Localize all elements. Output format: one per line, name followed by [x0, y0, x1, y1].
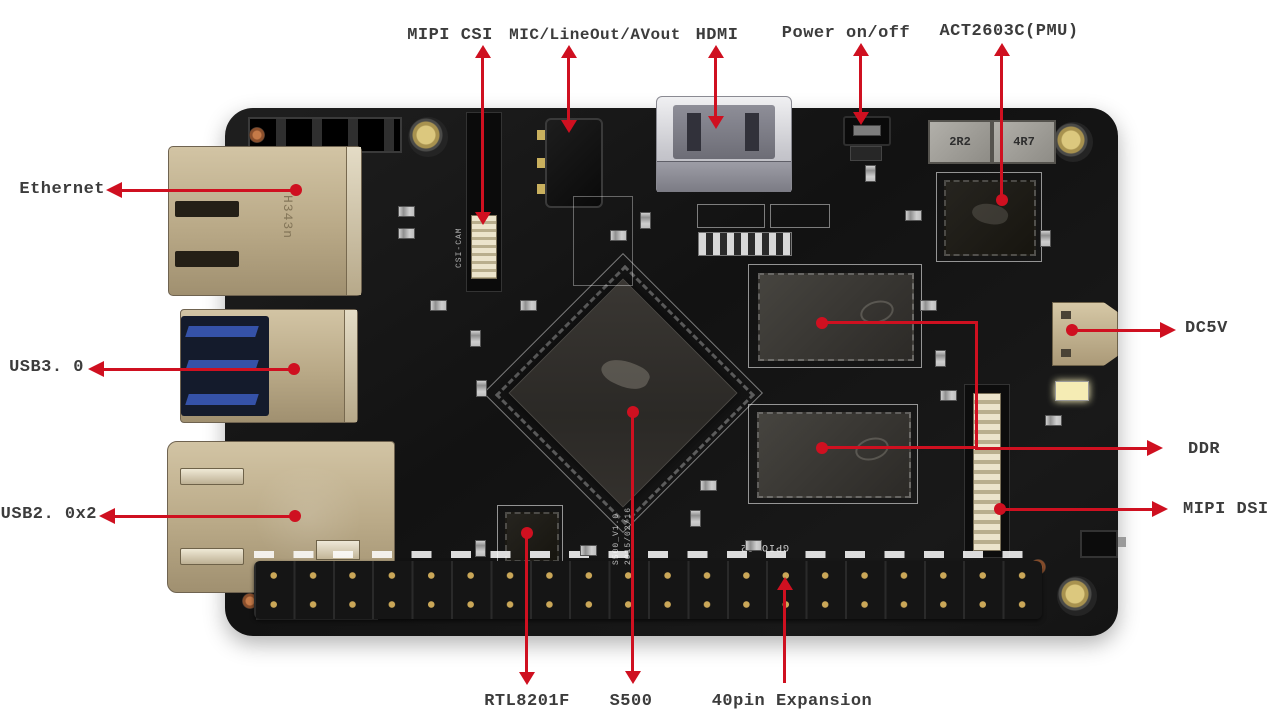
arrowhead-down — [625, 671, 641, 684]
arrow-line — [481, 56, 484, 214]
label-pmu: ACT2603C(PMU) — [939, 22, 1078, 41]
smd-component — [580, 545, 597, 556]
csi-connector — [466, 112, 502, 292]
label-mipi-dsi: MIPI DSI — [1183, 500, 1269, 519]
silkscreen-box — [770, 204, 830, 228]
smd-component — [398, 206, 415, 217]
status-led — [1055, 381, 1089, 401]
smd-component — [905, 210, 922, 221]
smd-component — [476, 380, 487, 397]
smd-component — [690, 510, 701, 527]
capacitor-row — [698, 232, 792, 256]
hdmi-slot — [745, 113, 759, 151]
arrow-line — [859, 54, 862, 114]
arrowhead-down — [853, 112, 869, 125]
arrow-dot — [996, 194, 1008, 206]
inductor: 2R2 — [928, 120, 992, 164]
arrowhead-down — [708, 116, 724, 129]
inductor-marking: 2R2 — [949, 135, 971, 149]
smd-component — [940, 390, 957, 401]
ethernet-port: H343n — [168, 146, 362, 296]
arrow-line — [822, 321, 978, 324]
hdmi-port — [656, 96, 792, 192]
silkscreen-box — [697, 204, 765, 228]
usb3-shield-edge — [344, 310, 357, 422]
smd-component — [935, 350, 946, 367]
arrow-line — [975, 321, 978, 450]
arrowhead-down — [519, 672, 535, 685]
gpio-40pin-header — [254, 561, 1042, 619]
inductor-marking: 4R7 — [1013, 135, 1035, 149]
usb3-opening — [181, 316, 269, 416]
ethernet-shield-edge — [346, 147, 361, 295]
arrow-line — [783, 589, 786, 683]
arrow-line — [714, 56, 717, 118]
label-hdmi: HDMI — [696, 26, 739, 45]
microusb-mount-pin — [1061, 349, 1071, 357]
audio-jack-pin — [537, 158, 545, 168]
annotated-board-diagram: H343n CSI-CAM — [0, 0, 1280, 720]
arrow-line — [631, 412, 634, 672]
arrow-dot — [288, 363, 300, 375]
smd-component — [920, 300, 937, 311]
smd-component — [398, 228, 415, 239]
pmu-chip — [944, 180, 1036, 256]
smd-component — [1045, 415, 1062, 426]
label-usb2: USB2. 0x2 — [0, 505, 97, 524]
label-rtl8201f: RTL8201F — [484, 692, 570, 711]
arrow-line — [120, 189, 296, 192]
arrow-dot — [289, 510, 301, 522]
label-power: Power on/off — [782, 24, 910, 43]
ddr-chip-2 — [757, 412, 911, 498]
label-dc5v: DC5V — [1185, 319, 1228, 338]
arrowhead-right — [1152, 501, 1168, 517]
arrow-line — [1000, 54, 1003, 198]
hdmi-base — [657, 161, 791, 192]
ethernet-clip-slot — [175, 201, 239, 217]
arrow-line — [525, 533, 528, 673]
usb3-contact — [185, 394, 259, 405]
mounting-screw — [1053, 122, 1093, 162]
smd-component — [640, 212, 651, 229]
smd-component — [610, 230, 627, 241]
ethernet-marking-text: H343n — [280, 195, 295, 239]
smd-component — [700, 480, 717, 491]
hdmi-slot — [687, 113, 701, 151]
label-expansion: 40pin Expansion — [712, 692, 873, 711]
ddr-chip-1 — [758, 273, 914, 361]
board-rev-text: S500_V1.0 — [612, 513, 621, 565]
label-usb3: USB3. 0 — [0, 358, 84, 377]
smd-component — [475, 540, 486, 557]
ethernet-clip-slot — [175, 251, 239, 267]
arrow-line — [567, 56, 570, 122]
arrow-line — [1072, 329, 1164, 332]
smd-component — [470, 330, 481, 347]
smd-component — [745, 540, 762, 551]
dsi-connector — [964, 384, 1010, 558]
smd-component — [520, 300, 537, 311]
arrow-line — [822, 446, 978, 449]
arrow-line — [113, 515, 295, 518]
arrow-line — [1000, 508, 1156, 511]
mounting-screw — [408, 117, 448, 157]
gpio-silkscreen — [254, 551, 1042, 558]
label-mic-lineout-avout: MIC/LineOut/AVout — [509, 26, 681, 44]
arrowhead-down — [561, 120, 577, 133]
mounting-screw — [1057, 576, 1097, 616]
usb2-clip — [180, 468, 244, 485]
arrowhead-right — [1160, 322, 1176, 338]
arrowhead-down — [475, 212, 491, 225]
usb2-clip — [180, 548, 244, 565]
label-s500: S500 — [610, 692, 653, 711]
arrow-line — [975, 447, 1147, 450]
smd-component — [1040, 230, 1051, 247]
soc-logo-mark — [598, 352, 652, 396]
side-button — [1080, 530, 1118, 558]
audio-jack-pin — [537, 184, 545, 194]
smd-component — [430, 300, 447, 311]
csi-marking-text: CSI-CAM — [455, 227, 464, 268]
copper-pad — [249, 127, 265, 143]
arrowhead-right — [1147, 440, 1163, 456]
usb3-contact — [185, 326, 259, 337]
silkscreen-box — [573, 196, 633, 286]
hdmi-opening — [673, 105, 775, 159]
side-button-stem — [1118, 537, 1126, 547]
power-switch-bracket — [850, 146, 882, 161]
power-switch-actuator — [853, 125, 881, 136]
microusb-mount-pin — [1061, 311, 1071, 319]
ddr-logo-mark — [853, 434, 892, 464]
audio-jack-pin — [537, 130, 545, 140]
label-ethernet: Ethernet — [0, 180, 105, 199]
microusb-port — [1052, 302, 1118, 366]
arrow-dot — [290, 184, 302, 196]
label-ddr: DDR — [1188, 440, 1220, 459]
arrow-line — [102, 368, 294, 371]
label-mipi-csi: MIPI CSI — [407, 26, 493, 45]
smd-component — [865, 165, 876, 182]
usb3-port — [180, 309, 358, 423]
